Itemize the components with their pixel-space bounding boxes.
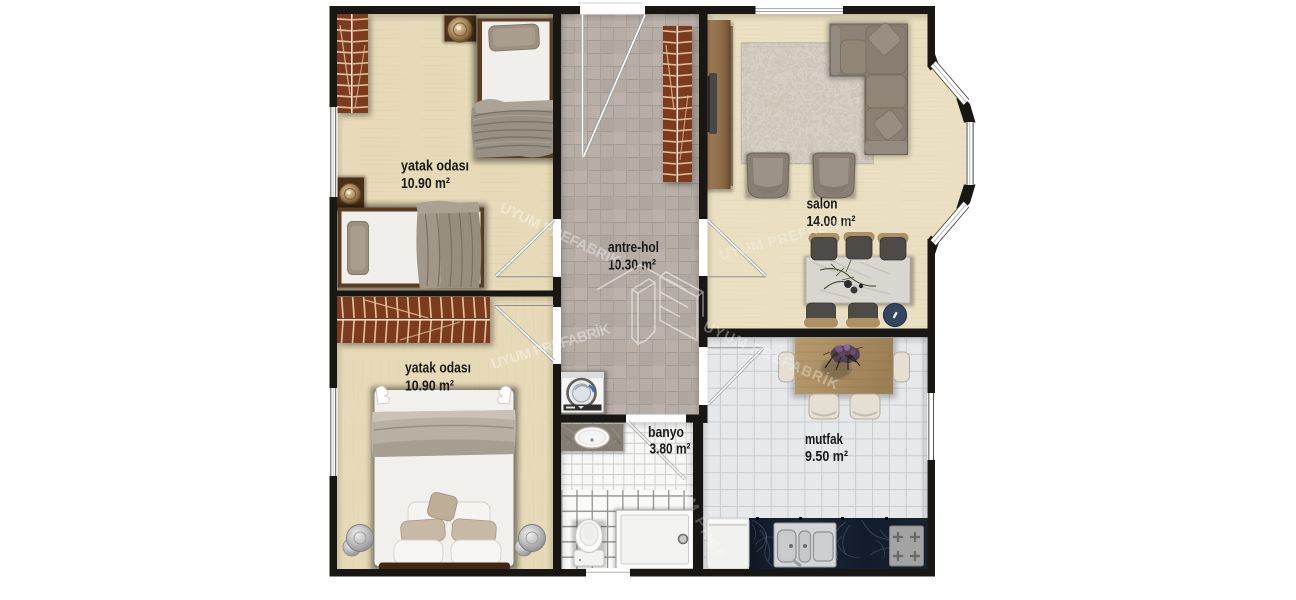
svg-text:salon: salon	[807, 196, 838, 213]
svg-text:10.90 m²: 10.90 m²	[405, 378, 454, 395]
svg-text:9.50 m²: 9.50 m²	[805, 448, 848, 465]
svg-text:yatak odası: yatak odası	[405, 360, 471, 377]
svg-text:10.90 m²: 10.90 m²	[401, 175, 450, 192]
svg-text:3.80 m²: 3.80 m²	[650, 441, 691, 458]
svg-text:mutfak: mutfak	[805, 431, 843, 448]
svg-text:yatak odası: yatak odası	[401, 158, 469, 175]
svg-text:banyo: banyo	[648, 424, 684, 441]
